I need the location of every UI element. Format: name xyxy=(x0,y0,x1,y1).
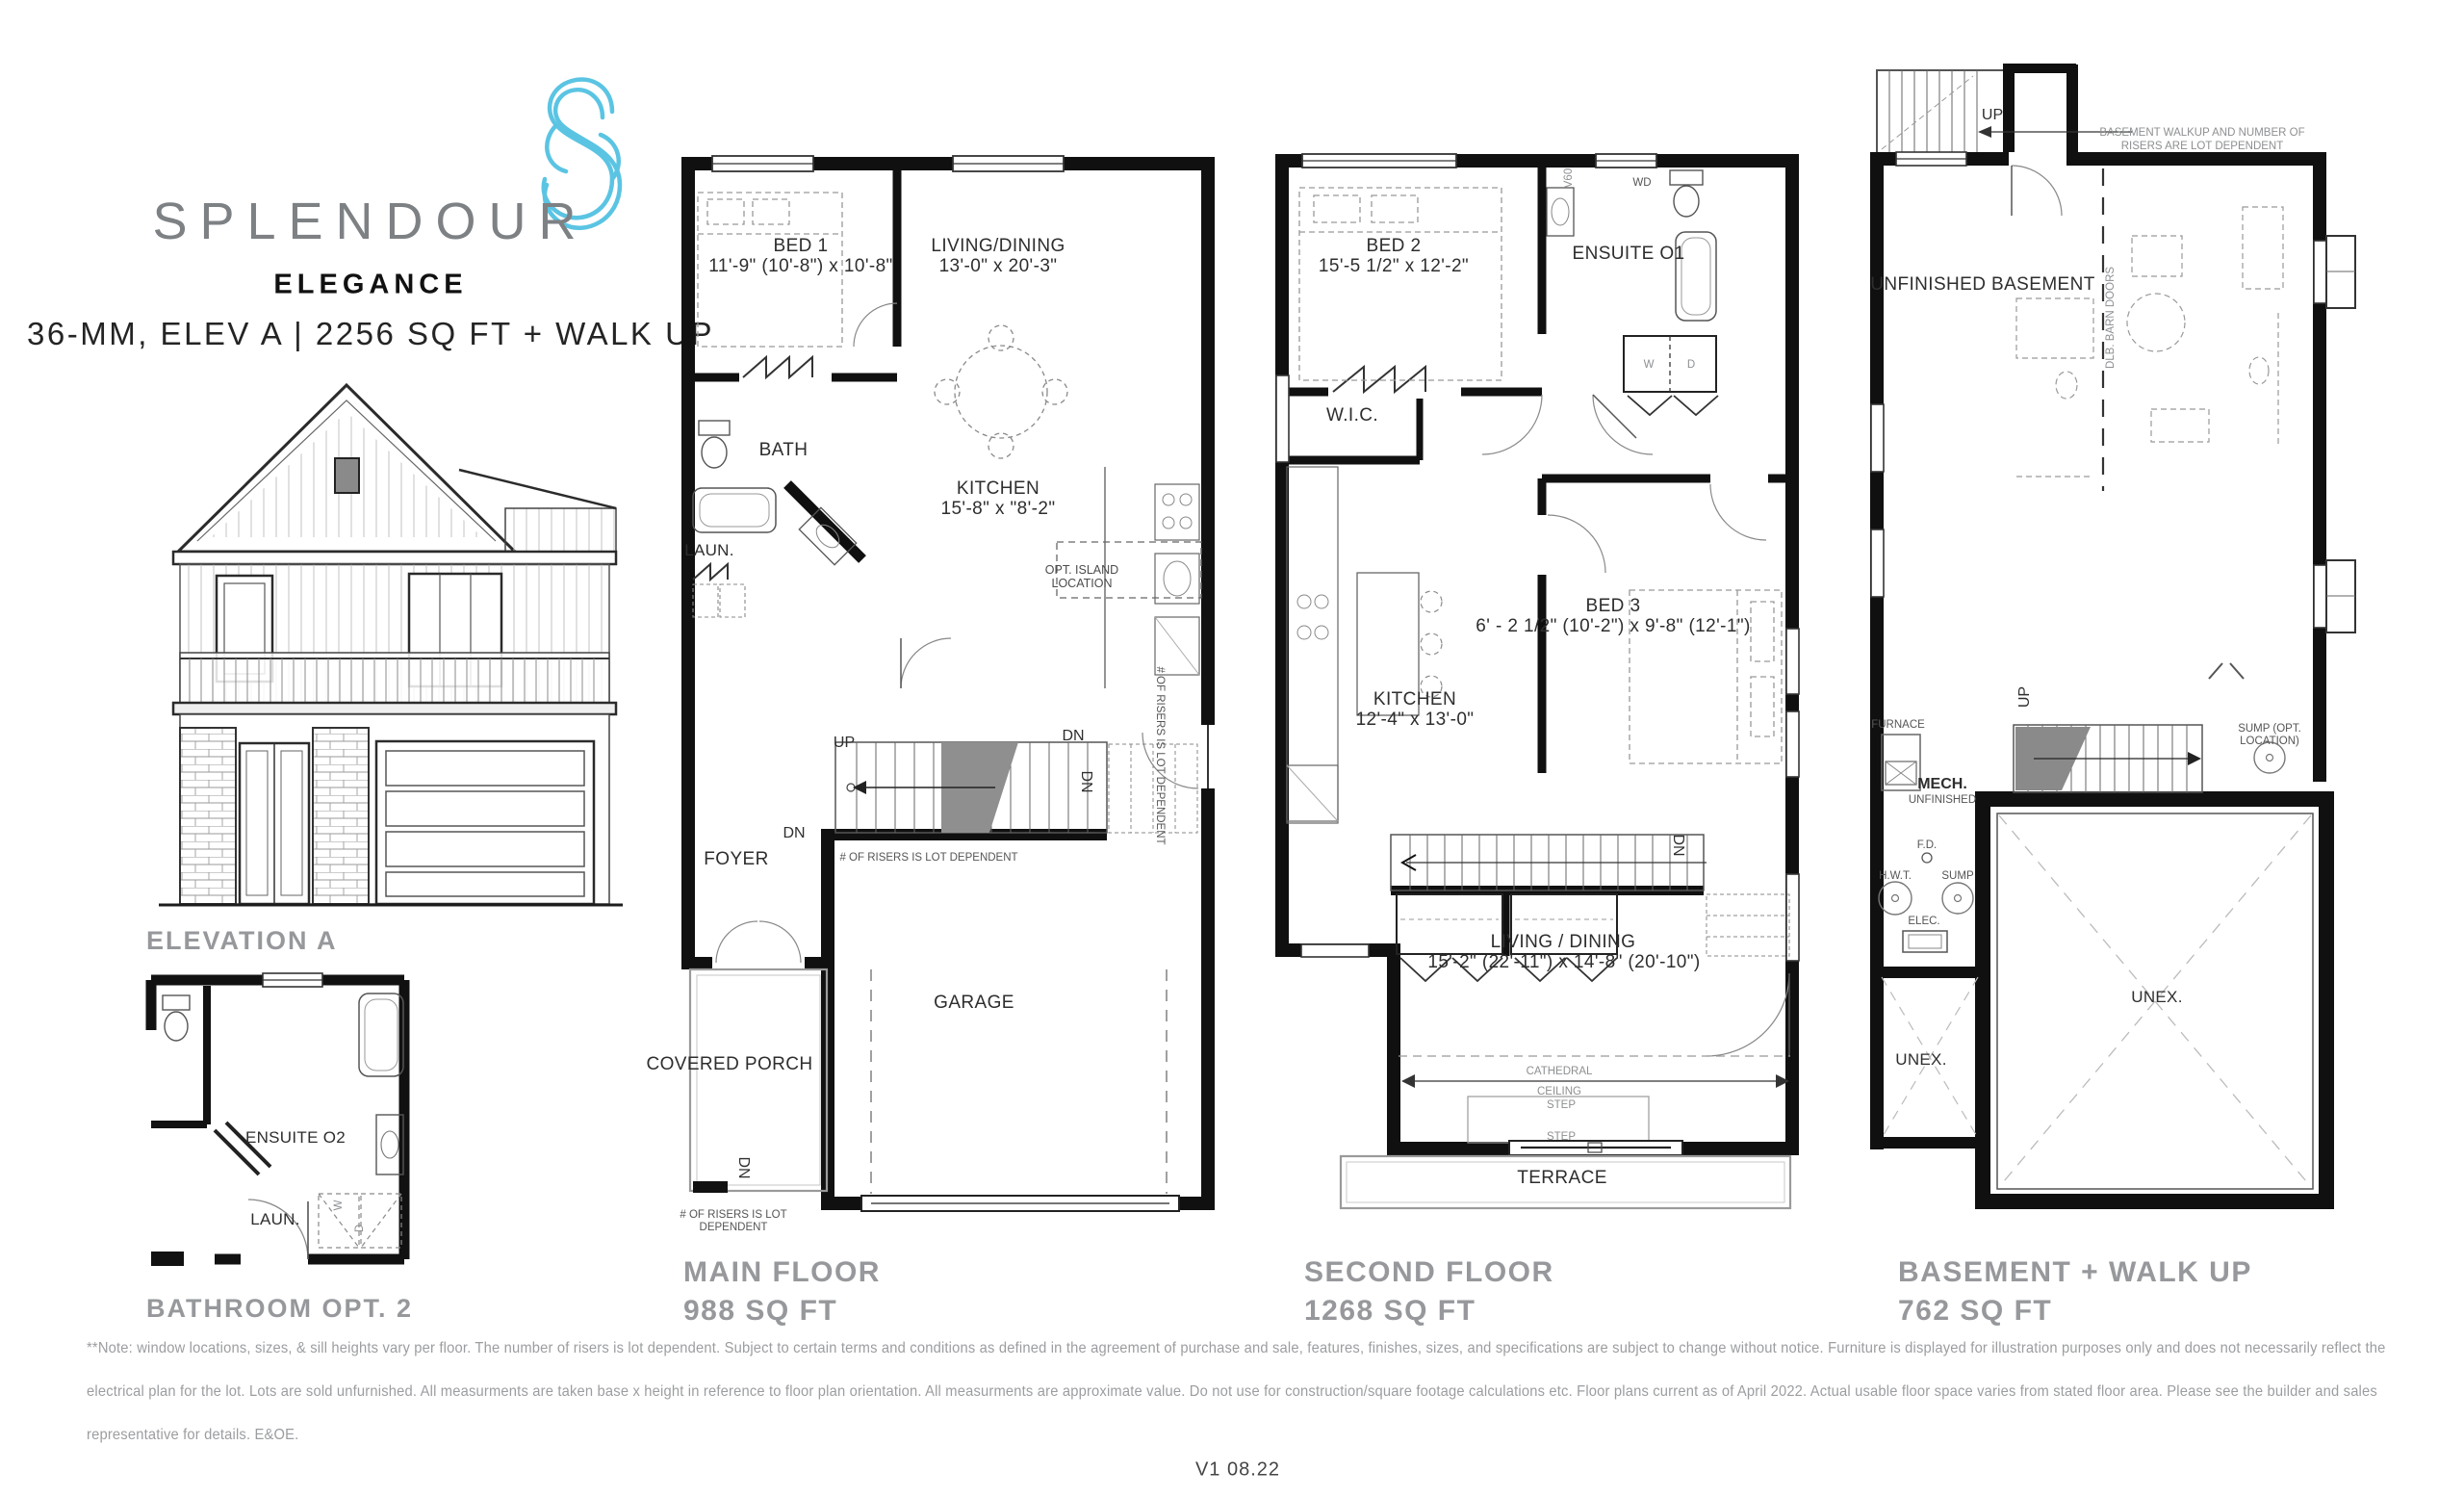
bm-barn-doors-label: DLB. BARN DOORS xyxy=(2105,267,2117,369)
bathroom-opt2-plan xyxy=(130,970,419,1278)
mf-risers-note: # OF RISERS IS LOT DEPENDENT xyxy=(839,852,1017,864)
sf-kitchen-label: KITCHEN xyxy=(1373,689,1456,710)
sf-bed2-dims: 15'-5 1/2" x 12'-2" xyxy=(1319,256,1469,277)
opt2-laundry-label: LAUN. xyxy=(250,1210,300,1229)
mf-living-dims: 13'-0" x 20'-3" xyxy=(939,256,1058,277)
sf-step-label-1: STEP xyxy=(1547,1099,1576,1111)
disclaimer-line-2: electrical plan for the lot. Lots are so… xyxy=(87,1383,2377,1401)
sf-kitchen-dims: 12'-4" x 13'-0" xyxy=(1356,710,1475,731)
mf-kitchen-dims: 15'-8" x "8'-2" xyxy=(940,499,1055,520)
bm-furnace-label: FURNACE xyxy=(1871,719,1925,731)
brand-name: SPLENDOUR xyxy=(152,192,588,251)
bm-sump-opt-label-2: LOCATION) xyxy=(2240,736,2299,747)
bm-walkup-note-1: BASEMENT WALKUP AND NUMBER OF xyxy=(2099,127,2304,139)
mf-bed1-dims: 11'-9" (10'-8") x 10'-8" xyxy=(708,256,892,277)
mf-porch-risers-note-2: DEPENDENT xyxy=(700,1222,768,1233)
mf-kitchen-label: KITCHEN xyxy=(957,478,1039,500)
opt2-washer-label: W xyxy=(333,1200,345,1211)
sf-step-label-2: STEP xyxy=(1547,1131,1576,1143)
bm-elec-label: ELEC. xyxy=(1908,916,1939,927)
mf-foyer-label: FOYER xyxy=(704,849,768,870)
mf-covered-porch-label: COVERED PORCH xyxy=(646,1054,812,1075)
basement-plan xyxy=(1862,63,2416,1218)
bm-sump-label: SUMP xyxy=(1941,870,1973,882)
sf-ensuite-label: ENSUITE O1 xyxy=(1573,244,1685,265)
mf-garage-label: GARAGE xyxy=(934,993,1014,1014)
mf-up-label: UP xyxy=(834,735,855,752)
mf-dn-label-2: DN xyxy=(1077,770,1094,792)
main-floor-plan xyxy=(674,149,1222,1276)
brand-model: ELEGANCE xyxy=(273,270,467,301)
sf-area: 1268 SQ FT xyxy=(1304,1295,1476,1328)
mf-title: MAIN FLOOR xyxy=(683,1256,881,1289)
mf-laundry-label: LAUN. xyxy=(684,541,734,560)
mf-risers-note-side: # OF RISERS IS LOT DEPENDENT xyxy=(1154,666,1166,844)
sf-bed3-label: BED 3 xyxy=(1586,596,1641,617)
mf-dn-label-3: DN xyxy=(783,825,805,842)
elevation-drawing xyxy=(120,364,630,927)
sf-living-label: LIVING / DINING xyxy=(1491,932,1636,953)
mf-bed1-label: BED 1 xyxy=(774,236,829,257)
sf-dn-label: DN xyxy=(1669,834,1686,856)
bm-mech-sub-label: UNFINISHED xyxy=(1909,794,1976,806)
sf-wd-label: WD xyxy=(1632,177,1651,189)
sf-cathedral-label-1: CATHEDRAL xyxy=(1527,1066,1593,1077)
disclaimer-line-1: **Note: window locations, sizes, & sill … xyxy=(87,1340,2386,1357)
sf-title: SECOND FLOOR xyxy=(1304,1256,1554,1289)
sf-washer-label: W xyxy=(1644,359,1655,371)
bm-up-label: UP xyxy=(1982,107,2003,124)
sf-cathedral-label-2: CEILING xyxy=(1537,1086,1581,1097)
sf-bed3-dims: 6' - 2 1/2" (10'-2") x 9'-8" (12'-1") xyxy=(1476,616,1750,637)
mf-opt-island-label-2: LOCATION xyxy=(1052,577,1113,590)
bm-unex-small-label: UNEX. xyxy=(1895,1050,1946,1070)
sf-wic-label: W.I.C. xyxy=(1326,405,1378,426)
bm-fd-label: F.D. xyxy=(1917,839,1937,851)
sf-living-dims: 15'-2" (22'-11") x 14'-8" (20'-10") xyxy=(1427,952,1700,973)
mf-porch-dn-label: DN xyxy=(734,1156,752,1178)
disclaimer-line-3: representative for details. E&OE. xyxy=(87,1427,298,1444)
sf-terrace-label: TERRACE xyxy=(1517,1168,1607,1189)
bm-hwt-label: H.W.T. xyxy=(1879,870,1912,882)
opt2-dryer-label: D xyxy=(354,1225,366,1232)
mf-area: 988 SQ FT xyxy=(683,1295,837,1328)
mf-living-label: LIVING/DINING xyxy=(931,236,1065,257)
bm-title: BASEMENT + WALK UP xyxy=(1898,1256,2252,1289)
mf-bath-label: BATH xyxy=(759,440,808,461)
bm-walkup-note-2: RISERS ARE LOT DEPENDENT xyxy=(2121,141,2284,152)
mf-dn-label-1: DN xyxy=(1062,728,1084,745)
bm-sump-opt-label-1: SUMP (OPT. xyxy=(2238,723,2301,735)
bm-unfinished-label: UNFINISHED BASEMENT xyxy=(1870,274,2095,296)
bm-unex-large-label: UNEX. xyxy=(2131,988,2182,1007)
brand-spec: 36-MM, ELEV A | 2256 SQ FT + WALK UP xyxy=(27,316,714,352)
sf-v60-label: V60 xyxy=(1563,168,1575,188)
mf-porch-risers-note-1: # OF RISERS IS LOT xyxy=(680,1209,786,1221)
bathroom-opt2-title: BATHROOM OPT. 2 xyxy=(146,1294,413,1324)
second-floor-plan xyxy=(1275,149,1805,1218)
sf-bed2-label: BED 2 xyxy=(1367,236,1422,257)
sf-dryer-label: D xyxy=(1687,359,1695,371)
opt2-ensuite-label: ENSUITE O2 xyxy=(245,1128,346,1148)
version-label: V1 08.22 xyxy=(1195,1459,1280,1482)
bm-area: 762 SQ FT xyxy=(1898,1295,2052,1328)
mf-opt-island-label-1: OPT. ISLAND xyxy=(1045,563,1118,577)
floorplan-sheet: SPLENDOUR ELEGANCE 36-MM, ELEV A | 2256 … xyxy=(0,0,2464,1497)
elevation-title: ELEVATION A xyxy=(146,926,338,956)
bm-mech-label: MECH. xyxy=(1917,776,1967,793)
bm-up-label-2: UP xyxy=(2016,686,2034,708)
